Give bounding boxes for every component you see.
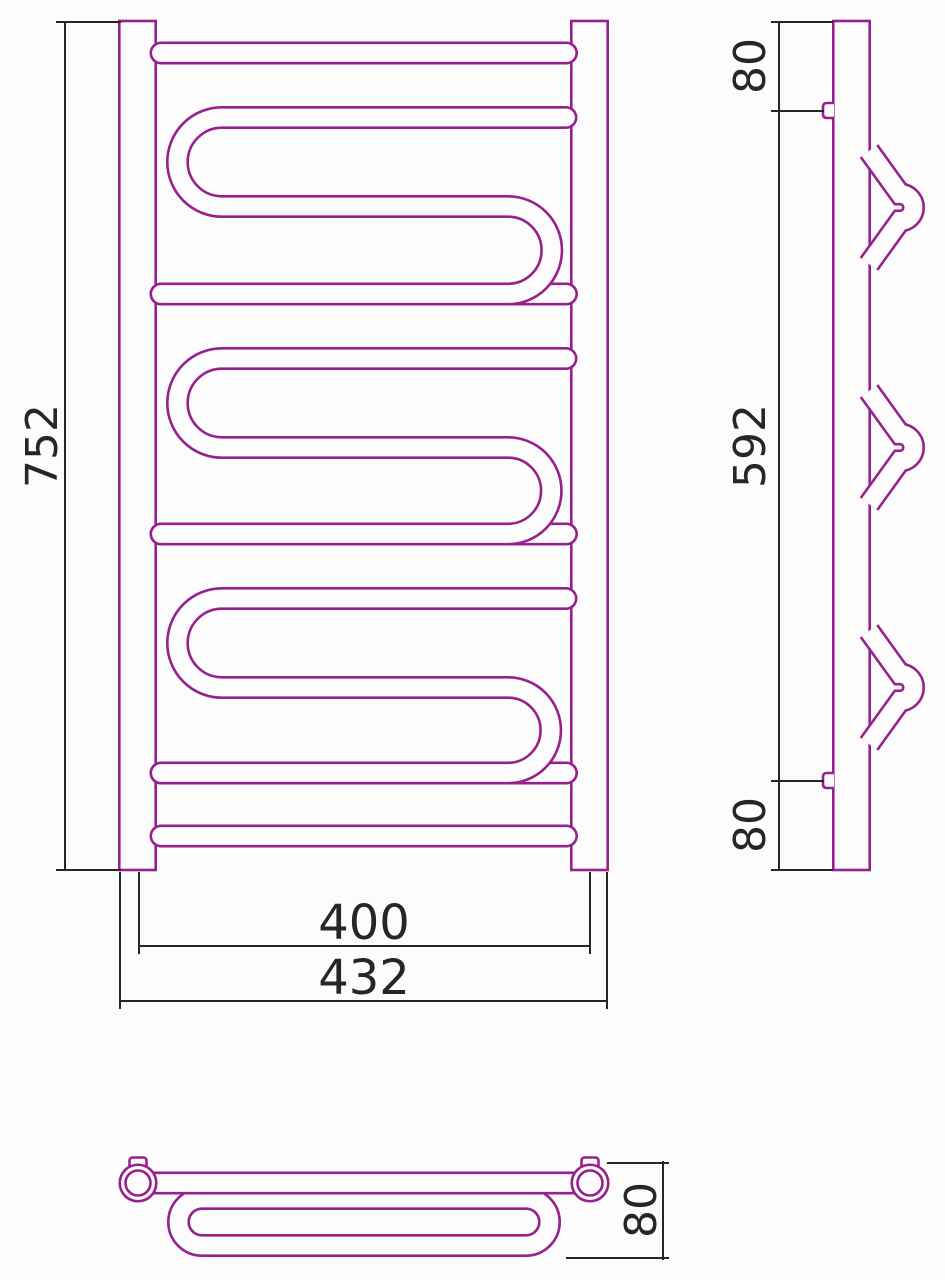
front-view: 752 400 432	[17, 21, 608, 1009]
front-overall-width-value: 432	[318, 950, 410, 1006]
side-bracket-span-value: 592	[725, 404, 776, 488]
top-right-collector	[572, 1165, 609, 1202]
side-top-offset-value: 80	[725, 38, 776, 94]
top-coil-loop	[178, 1199, 549, 1246]
side-coil-chevrons	[869, 151, 913, 744]
side-bottom-offset-value: 80	[725, 797, 776, 853]
side-dim-chain: 80 592 80	[725, 22, 833, 872]
top-depth-value: 80	[616, 1182, 667, 1238]
technical-drawing: 752 400 432	[0, 0, 945, 1280]
front-left-rail	[119, 21, 155, 870]
front-dim-rail-centers: 400	[139, 872, 590, 954]
front-right-rail	[571, 21, 607, 870]
side-rail-tube	[833, 21, 869, 870]
top-view: 80	[120, 1158, 669, 1261]
drawing-canvas: 752 400 432	[0, 0, 945, 1280]
side-bracket-bottom	[823, 773, 834, 788]
front-dim-height: 752	[17, 22, 121, 872]
side-bracket-top	[823, 103, 834, 118]
side-view: 80 592 80	[725, 21, 913, 871]
front-height-value: 752	[17, 404, 68, 488]
front-rail-width-value: 400	[318, 895, 410, 951]
top-left-collector	[120, 1165, 157, 1202]
front-serpentine-coils	[161, 118, 566, 774]
